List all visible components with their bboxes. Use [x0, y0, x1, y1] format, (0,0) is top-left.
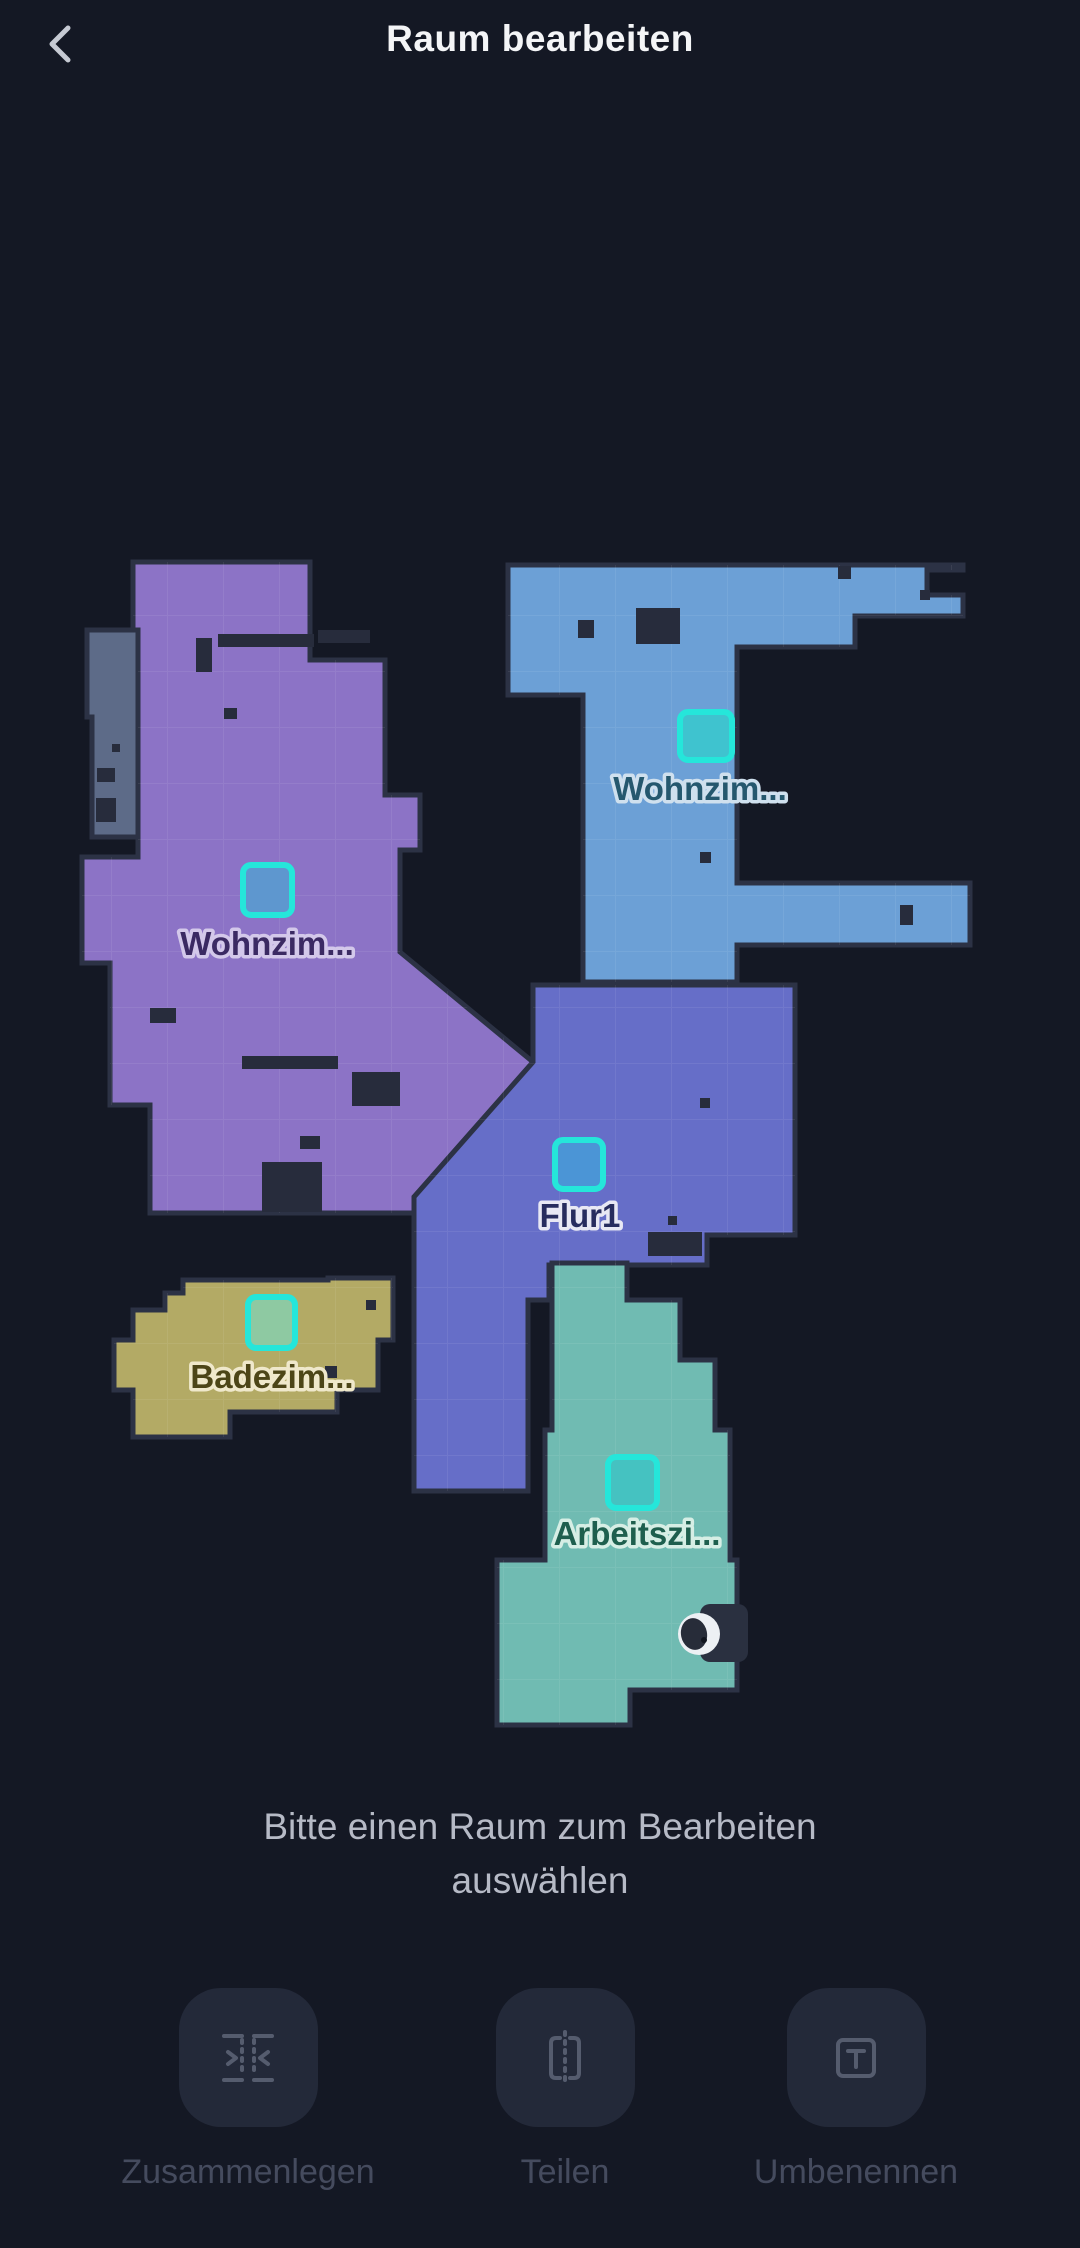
- rename-button[interactable]: [787, 1988, 926, 2127]
- room-wohnzimmer-left[interactable]: [82, 562, 533, 1213]
- room-marker-badezimmer[interactable]: [248, 1297, 295, 1348]
- rename-icon: [824, 2026, 888, 2090]
- merge-rooms-icon: [216, 2026, 280, 2090]
- action-split: Teilen: [425, 1988, 705, 2192]
- room-marker-flur1[interactable]: [555, 1140, 603, 1189]
- rename-label: Umbenennen: [754, 2153, 958, 2192]
- split-label: Teilen: [521, 2153, 610, 2192]
- room-marker-arbeitszimmer[interactable]: [608, 1457, 657, 1508]
- hint-line-2: auswählen: [0, 1854, 1080, 1908]
- split-button[interactable]: [496, 1988, 635, 2127]
- selection-hint: Bitte einen Raum zum Bearbeiten auswähle…: [0, 1800, 1080, 1908]
- split-room-icon: [533, 2026, 597, 2090]
- hint-line-1: Bitte einen Raum zum Bearbeiten: [0, 1800, 1080, 1854]
- action-merge: Zusammenlegen: [108, 1988, 388, 2192]
- action-rename: Umbenennen: [716, 1988, 996, 2192]
- unassigned-area: [87, 630, 138, 837]
- room-marker-wohnzimmer-right[interactable]: [680, 712, 732, 760]
- room-marker-wohnzimmer-left[interactable]: [243, 865, 292, 915]
- floor-map: Wohnzim... Wohnzim... Flur1 Badezim... A…: [0, 0, 1080, 2248]
- merge-label: Zusammenlegen: [121, 2153, 374, 2192]
- merge-button[interactable]: [179, 1988, 318, 2127]
- room-wohnzimmer-right[interactable]: [508, 565, 970, 982]
